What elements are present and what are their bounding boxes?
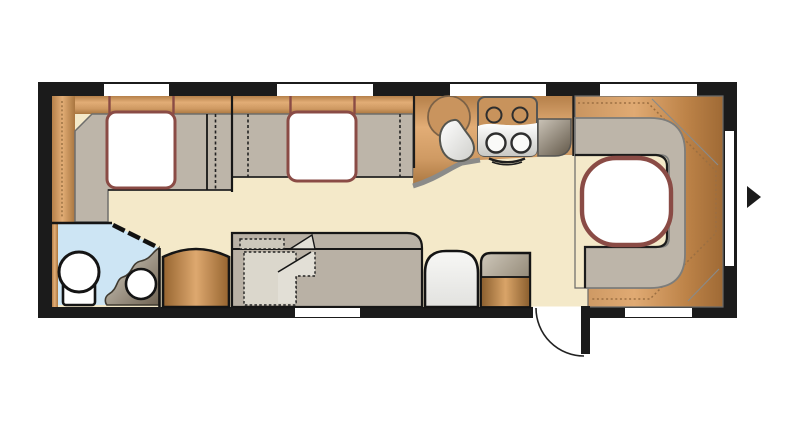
front-overhead-wood-band: [52, 96, 415, 114]
window: [600, 84, 697, 96]
rear-lounge: [575, 96, 723, 307]
front-wall-wood-panel: [52, 96, 75, 222]
window: [277, 84, 373, 96]
window: [104, 84, 169, 96]
side-unit-white: [425, 251, 478, 307]
window: [450, 84, 546, 96]
kitchen-end-unit: [538, 119, 571, 156]
door-leaf: [581, 306, 590, 354]
washroom-basin: [126, 269, 156, 299]
door-opening: [533, 307, 581, 319]
rear-table: [582, 158, 671, 245]
wardrobe: [163, 249, 229, 307]
hob-burner: [487, 134, 506, 153]
hob-burner: [512, 134, 531, 153]
direction-arrow-icon: [747, 186, 761, 208]
window-rear: [725, 131, 734, 266]
toilet-bowl: [59, 252, 99, 292]
window: [625, 308, 692, 317]
side-bed: [232, 233, 422, 307]
storage-cabinet-wood-front: [481, 277, 530, 307]
window: [295, 308, 360, 317]
nearside-seat-cushion: [288, 112, 356, 181]
offside-seat-cushion: [107, 112, 175, 188]
caravan-floorplan-svg: [0, 0, 800, 445]
washroom-wall-wood: [52, 222, 58, 307]
entrance-door: [533, 306, 590, 356]
caravan-floorplan: [0, 0, 800, 445]
wardrobe-body: [163, 249, 229, 307]
bed-outline-dashed-small: [240, 239, 284, 249]
